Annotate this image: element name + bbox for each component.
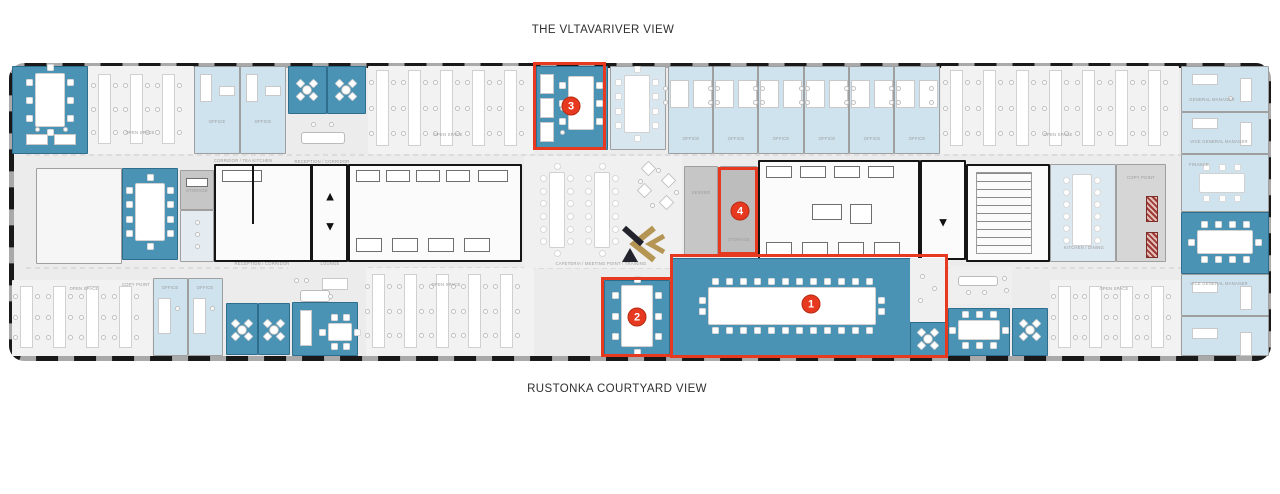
chair-icon <box>177 107 182 112</box>
chair-icon <box>851 86 856 91</box>
chair-icon <box>585 226 592 233</box>
fixture <box>416 170 440 182</box>
desk-bench <box>950 70 963 146</box>
chair-icon <box>1144 294 1149 299</box>
desk <box>200 74 212 102</box>
desk-bench <box>504 70 517 146</box>
chair-icon <box>567 213 574 220</box>
chair-icon <box>567 188 574 195</box>
chair-icon <box>540 188 547 195</box>
chair-icon <box>1063 201 1070 208</box>
chair-icon <box>1082 315 1087 320</box>
k-logo <box>620 224 668 264</box>
desk <box>246 74 258 102</box>
title-courtyard-view: RUSTONKA COURTYARD VIEW <box>527 383 707 395</box>
chair-icon <box>1063 177 1070 184</box>
chair-icon <box>155 130 160 135</box>
chair-icon <box>91 107 96 112</box>
room-label: OFFICE <box>909 137 926 142</box>
chair-icon <box>1113 315 1118 320</box>
fixture <box>478 170 508 182</box>
chair-icon <box>1051 294 1056 299</box>
conference-table <box>328 323 352 341</box>
chair-icon <box>419 309 424 314</box>
room-office-general-manager <box>1181 66 1269 112</box>
chair-icon <box>497 106 502 111</box>
chair-icon <box>497 131 502 136</box>
chair-icon <box>1104 315 1109 320</box>
chair-icon <box>369 131 374 136</box>
conference-table <box>35 73 65 127</box>
chair-icon <box>465 131 470 136</box>
fixture <box>186 178 208 187</box>
room-label: CORRIDOR / TEA KITCHEN <box>214 159 272 164</box>
chair-icon <box>1094 177 1101 184</box>
chair-icon <box>615 122 622 129</box>
chair-icon <box>896 86 901 91</box>
elevator-arrow: ▼ <box>937 215 950 230</box>
chair-icon <box>329 122 334 127</box>
chair-icon <box>369 106 374 111</box>
chair-icon <box>1243 221 1250 228</box>
chair-icon <box>612 213 619 220</box>
desk <box>265 86 281 96</box>
room-entrance-area <box>36 168 122 264</box>
chair-icon <box>147 174 154 181</box>
chair-icon <box>391 131 396 136</box>
room-label: OFFICE <box>864 137 881 142</box>
chair-icon <box>1094 225 1101 232</box>
room-label: OPEN SPACE <box>1043 133 1072 138</box>
conference-table <box>1072 174 1092 246</box>
room-elevator-east <box>920 160 966 260</box>
chair-icon <box>46 294 51 299</box>
chair-icon <box>391 106 396 111</box>
chair-icon <box>585 175 592 182</box>
chair-icon <box>175 306 180 311</box>
chair-icon <box>599 163 606 170</box>
chair-icon <box>365 284 370 289</box>
chair-icon <box>519 106 524 111</box>
chair-icon <box>145 107 150 112</box>
chair-icon <box>365 309 370 314</box>
chair-icon <box>210 306 215 311</box>
desk <box>1240 286 1252 310</box>
chair-icon <box>515 309 520 314</box>
chair-icon <box>965 131 970 136</box>
chair-icon <box>519 131 524 136</box>
room-label: OFFICE <box>773 137 790 142</box>
chair-icon <box>554 250 561 257</box>
room-label: OPEN SPACE <box>1099 287 1128 292</box>
chair-icon <box>1113 294 1118 299</box>
chair-icon <box>652 79 659 86</box>
chair-icon <box>976 342 983 349</box>
chair-icon <box>612 226 619 233</box>
chair-icon <box>1002 276 1007 281</box>
conference-table <box>624 75 650 133</box>
chair-icon <box>805 100 810 105</box>
room-label: KITCHEN / DINING <box>1064 246 1104 251</box>
chair-icon <box>1009 131 1014 136</box>
chair-icon <box>1002 327 1009 334</box>
chair-icon <box>949 327 956 334</box>
chair-icon <box>1064 106 1069 111</box>
chair-icon <box>612 175 619 182</box>
chair-icon <box>397 284 402 289</box>
room-label: VICE GENERAL MANAGER <box>1190 140 1247 145</box>
chair-icon <box>177 130 182 135</box>
room-label: OFFICE <box>197 286 214 291</box>
chair-icon <box>612 188 619 195</box>
chair-icon <box>1042 106 1047 111</box>
chair-icon <box>354 329 361 336</box>
desk-bench <box>1120 286 1133 348</box>
chair-icon <box>68 294 73 299</box>
chair-icon <box>1229 221 1236 228</box>
chair-icon <box>13 294 18 299</box>
chair-icon <box>1201 221 1208 228</box>
desk <box>670 80 689 108</box>
chair-icon <box>1130 131 1135 136</box>
chair-icon <box>67 97 74 104</box>
chair-icon <box>896 100 901 105</box>
chair-icon <box>638 179 643 184</box>
desk-bench <box>119 286 132 348</box>
chair-icon <box>195 220 200 225</box>
chair-icon <box>112 294 117 299</box>
chair-icon <box>79 294 84 299</box>
room-label: STORAGE <box>186 189 208 194</box>
hatched-element <box>1146 196 1158 222</box>
chair-icon <box>889 86 894 91</box>
desk <box>322 278 348 290</box>
chair-icon <box>1144 315 1149 320</box>
desk-bench <box>372 274 385 348</box>
fixture <box>800 166 826 178</box>
fixture <box>850 204 872 224</box>
chair-icon <box>656 168 661 173</box>
chair-icon <box>134 294 139 299</box>
chair-icon <box>1141 106 1146 111</box>
chair-icon <box>599 250 606 257</box>
room-label: OPEN SPACE <box>431 283 460 288</box>
fixture <box>392 238 418 252</box>
chair-icon <box>652 122 659 129</box>
chair-icon <box>844 100 849 105</box>
room-label: SERVER <box>692 191 710 196</box>
chair-icon <box>585 213 592 220</box>
chair-icon <box>1004 288 1009 293</box>
chair-icon <box>540 175 547 182</box>
chair-icon <box>35 127 40 132</box>
chair-icon <box>799 100 804 105</box>
chair-icon <box>429 309 434 314</box>
fixture <box>446 170 470 182</box>
chair-icon <box>101 294 106 299</box>
marker-1: 1 <box>802 295 821 314</box>
chair-icon <box>1215 221 1222 228</box>
chair-icon <box>113 130 118 135</box>
sofa <box>300 290 330 302</box>
desk <box>1240 78 1252 102</box>
room-label: COPY POINT <box>122 283 150 288</box>
stairs <box>976 172 1032 254</box>
room-label: LOUNGE <box>321 262 340 267</box>
chair-icon <box>419 284 424 289</box>
chair-icon <box>493 284 498 289</box>
chair-icon <box>1108 106 1113 111</box>
room-label: OFFICE <box>255 120 272 125</box>
chair-icon <box>343 314 350 321</box>
chair-icon <box>1163 131 1168 136</box>
chair-icon <box>47 129 54 136</box>
chair-icon <box>1075 131 1080 136</box>
chair-icon <box>126 201 133 208</box>
chair-icon <box>929 86 934 91</box>
conference-table <box>1197 230 1253 254</box>
chair-icon <box>68 315 73 320</box>
chair-icon <box>35 294 40 299</box>
chair-icon <box>451 309 456 314</box>
chair-icon <box>397 309 402 314</box>
fixture <box>464 238 490 252</box>
desk-bench <box>1148 70 1161 146</box>
chair-icon <box>1234 195 1241 202</box>
chair-icon <box>1094 189 1101 196</box>
chair-icon <box>1166 315 1171 320</box>
chair-icon <box>331 343 338 350</box>
marker-3: 3 <box>562 97 581 116</box>
room-label: OPEN SPACE <box>69 287 98 292</box>
chair-icon <box>1063 225 1070 232</box>
chair-icon <box>26 115 33 122</box>
chair-icon <box>294 278 299 283</box>
desk-bench <box>1115 70 1128 146</box>
chair-icon <box>1073 294 1078 299</box>
chair-icon <box>1031 131 1036 136</box>
room-label: GENERAL MANAGER <box>1189 98 1234 103</box>
chair-icon <box>101 315 106 320</box>
chair-icon <box>674 190 679 195</box>
chair-icon <box>1063 213 1070 220</box>
desk-bench <box>1058 286 1071 348</box>
chair-icon <box>615 93 622 100</box>
chair-icon <box>493 309 498 314</box>
chair-icon <box>1094 201 1101 208</box>
chair-icon <box>26 79 33 86</box>
chair-icon <box>976 131 981 136</box>
chair-icon <box>998 131 1003 136</box>
chair-icon <box>1135 315 1140 320</box>
chair-icon <box>1130 106 1135 111</box>
chair-icon <box>1163 106 1168 111</box>
chair-icon <box>401 131 406 136</box>
chair-icon <box>567 226 574 233</box>
chair-icon <box>1009 106 1014 111</box>
chair-icon <box>634 135 641 142</box>
chair-icon <box>805 86 810 91</box>
desk-bench <box>983 70 996 146</box>
chair-icon <box>112 315 117 320</box>
chair-icon <box>1075 106 1080 111</box>
chair-icon <box>79 315 84 320</box>
room-label: OFFICE <box>728 137 745 142</box>
chair-icon <box>465 106 470 111</box>
chair-icon <box>966 290 971 295</box>
plan-rooms-layer: ▲▼▼OPEN SPACEOPEN SPACEOPEN SPACEOPEN SP… <box>8 62 1272 362</box>
chair-icon <box>1229 256 1236 263</box>
chair-icon <box>26 97 33 104</box>
chair-icon <box>155 107 160 112</box>
desk-bench <box>1082 70 1095 146</box>
fixture <box>356 238 382 252</box>
chair-icon <box>113 107 118 112</box>
chair-icon <box>167 201 174 208</box>
chair-icon <box>1097 106 1102 111</box>
chair-icon <box>943 131 948 136</box>
chair-icon <box>487 106 492 111</box>
chair-icon <box>126 216 133 223</box>
fixture <box>428 238 454 252</box>
title-river-view: THE VLTAVARIVER VIEW <box>532 24 675 36</box>
desk <box>26 134 48 145</box>
chair-icon <box>1188 239 1195 246</box>
chair-icon <box>461 284 466 289</box>
chair-icon <box>1073 315 1078 320</box>
chair-icon <box>515 284 520 289</box>
marker-4: 4 <box>731 202 750 221</box>
desk-bench <box>408 70 421 146</box>
chair-icon <box>650 203 655 208</box>
chair-icon <box>167 216 174 223</box>
room-label: OPEN SPACE <box>433 133 462 138</box>
chair-icon <box>1203 195 1210 202</box>
chair-icon <box>423 131 428 136</box>
room-label: OFFICE <box>819 137 836 142</box>
chair-icon <box>962 342 969 349</box>
chair-icon <box>715 86 720 91</box>
chair-icon <box>13 315 18 320</box>
chair-icon <box>962 311 969 318</box>
chair-icon <box>423 106 428 111</box>
elevator-arrow: ▼ <box>324 219 337 234</box>
chair-icon <box>708 100 713 105</box>
conference-table <box>594 172 610 248</box>
elevator-arrow: ▲ <box>324 189 337 204</box>
conference-table <box>958 320 1000 340</box>
chair-icon <box>331 314 338 321</box>
marker-2: 2 <box>628 308 647 327</box>
fixture <box>222 170 262 182</box>
chair-icon <box>753 86 758 91</box>
chair-icon <box>1219 164 1226 171</box>
interior-wall <box>310 164 313 262</box>
chair-icon <box>851 100 856 105</box>
chair-icon <box>455 106 460 111</box>
chair-icon <box>708 86 713 91</box>
chair-icon <box>483 309 488 314</box>
sofa <box>958 276 998 286</box>
desk-bench <box>98 74 111 144</box>
desk-bench <box>86 286 99 348</box>
chair-icon <box>663 86 668 91</box>
desk-bench <box>1089 286 1102 348</box>
room-label: OFFICE <box>683 137 700 142</box>
chair-icon <box>343 343 350 350</box>
chair-icon <box>1141 131 1146 136</box>
chair-icon <box>1031 106 1036 111</box>
chair-icon <box>760 100 765 105</box>
chair-icon <box>1243 256 1250 263</box>
chair-icon <box>1063 189 1070 196</box>
chair-icon <box>46 315 51 320</box>
chair-icon <box>615 108 622 115</box>
chair-icon <box>615 79 622 86</box>
chair-icon <box>965 106 970 111</box>
chair-icon <box>63 127 68 132</box>
chair-icon <box>1166 294 1171 299</box>
desk-bench <box>1151 286 1164 348</box>
room-server-room <box>684 166 718 256</box>
chair-icon <box>483 284 488 289</box>
desk <box>1192 74 1218 85</box>
chair-icon <box>753 100 758 105</box>
chair-icon <box>976 311 983 318</box>
chair-icon <box>126 230 133 237</box>
chair-icon <box>663 100 668 105</box>
chair-icon <box>328 294 333 299</box>
chair-icon <box>91 130 96 135</box>
chair-icon <box>387 309 392 314</box>
chair-icon <box>433 106 438 111</box>
chair-icon <box>982 290 987 295</box>
chair-icon <box>1234 164 1241 171</box>
chair-icon <box>1219 195 1226 202</box>
room-label: OPEN SPACE <box>125 131 154 136</box>
chair-icon <box>990 311 997 318</box>
chair-icon <box>487 131 492 136</box>
chair-icon <box>67 115 74 122</box>
chair-icon <box>167 230 174 237</box>
room-label: OFFICE <box>162 286 179 291</box>
chair-icon <box>401 106 406 111</box>
room-label: RECEPTION / CORRIDOR <box>294 160 349 165</box>
chair-icon <box>134 315 139 320</box>
desk-bench <box>162 74 175 144</box>
chair-icon <box>167 187 174 194</box>
chair-icon <box>387 284 392 289</box>
chair-icon <box>634 66 641 73</box>
chair-icon <box>1094 237 1101 244</box>
desk-bench <box>500 274 513 348</box>
chair-icon <box>715 100 720 105</box>
chair-icon <box>1135 294 1140 299</box>
desk <box>193 298 206 334</box>
chair-icon <box>47 64 54 71</box>
desk <box>219 86 235 96</box>
chair-icon <box>1108 131 1113 136</box>
chair-icon <box>1082 294 1087 299</box>
room-label: VICE GENERAL MANAGER <box>1190 282 1247 287</box>
chair-icon <box>1201 256 1208 263</box>
desk-bench <box>472 70 485 146</box>
chair-icon <box>799 86 804 91</box>
conference-table <box>135 183 165 241</box>
chair-icon <box>652 108 659 115</box>
chair-icon <box>585 188 592 195</box>
chair-icon <box>567 175 574 182</box>
